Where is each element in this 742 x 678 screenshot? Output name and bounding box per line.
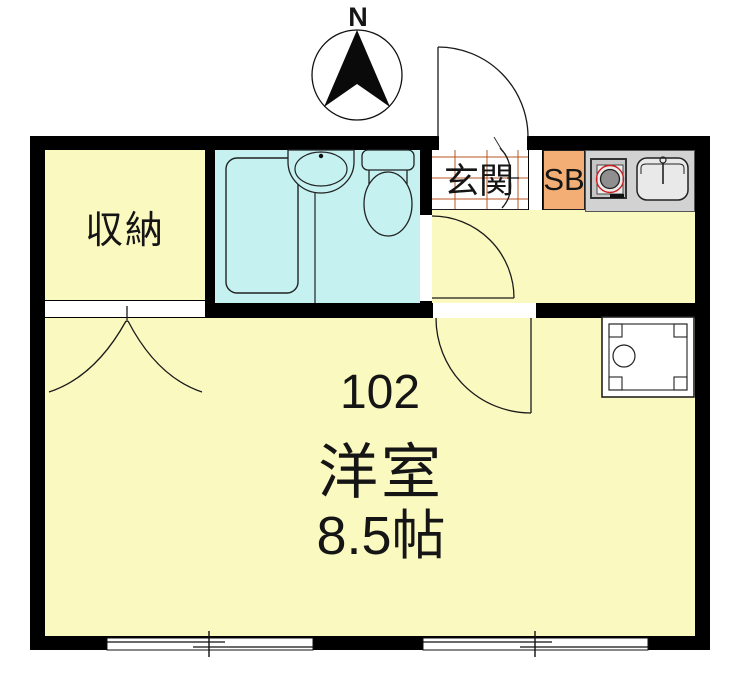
- main-room-door-opening: [432, 303, 537, 318]
- front-door-opening: [438, 136, 528, 150]
- bathroom-floor: [215, 150, 420, 303]
- entrance-side-gap: [528, 150, 543, 210]
- room-type-label: 洋室: [266, 443, 496, 503]
- storage-room-label: 収納: [45, 212, 205, 250]
- room-size-label: 8.5帖: [266, 509, 496, 563]
- wall-west: [30, 136, 45, 650]
- bathroom-door-opening: [420, 214, 432, 302]
- front-door-swing-arc: [438, 47, 528, 137]
- wall-storage-bathroom: [205, 150, 215, 318]
- wall-east: [695, 136, 710, 650]
- kitchen-counter: [585, 150, 695, 212]
- wall-south: [30, 636, 710, 650]
- hall-floor: [432, 210, 695, 303]
- wall-north: [30, 136, 710, 150]
- compass-north-label: N: [341, 4, 375, 31]
- storage-door-opening: [45, 300, 205, 318]
- room-number-label: 102: [290, 369, 470, 417]
- floor-plan: N 収納 玄関 SB 102 洋室 8.5帖: [0, 0, 742, 678]
- entrance-label: 玄関: [430, 164, 528, 199]
- shoe-box-label: SB: [543, 164, 585, 195]
